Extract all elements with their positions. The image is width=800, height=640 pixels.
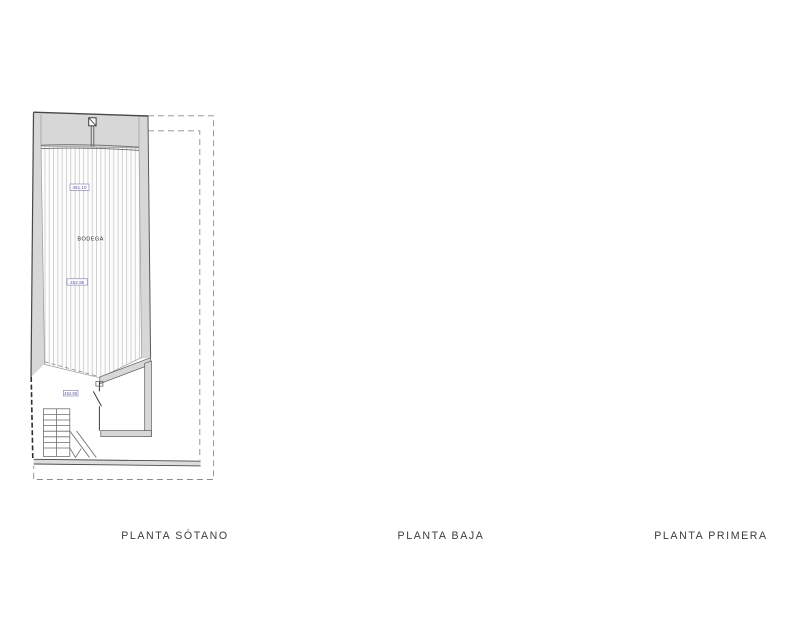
svg-text:PLANTA SÓTANO: PLANTA SÓTANO — [121, 529, 229, 542]
svg-text:452.95: 452.95 — [64, 391, 77, 396]
svg-text:452.95: 452.95 — [70, 280, 84, 285]
svg-text:451.10: 451.10 — [72, 185, 86, 190]
svg-text:PLANTA BAJA: PLANTA BAJA — [398, 530, 485, 542]
svg-text:PLANTA PRIMERA: PLANTA PRIMERA — [654, 530, 767, 542]
svg-text:BODEGA: BODEGA — [77, 237, 103, 243]
